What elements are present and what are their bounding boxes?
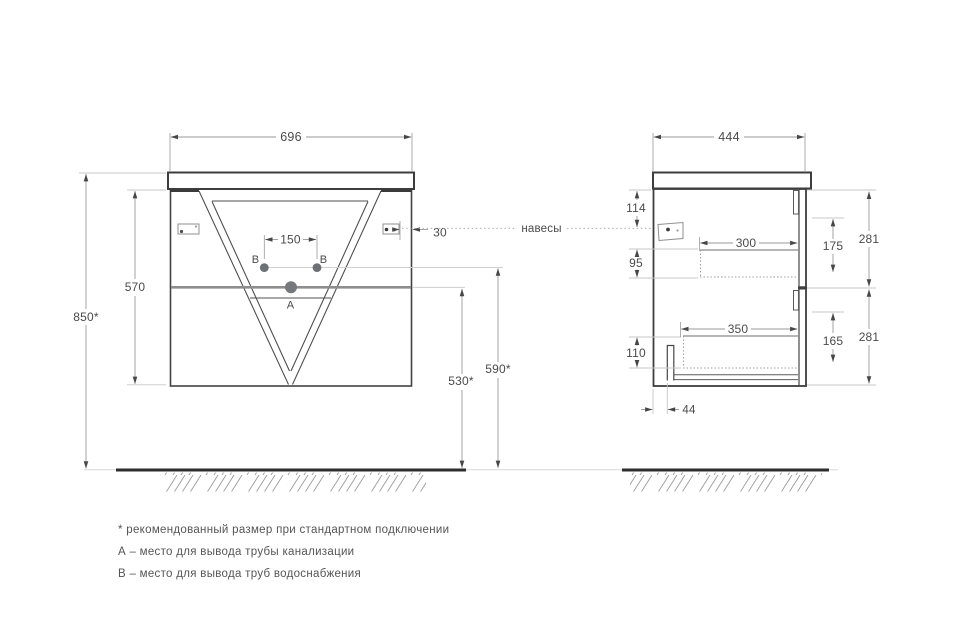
lower-drawer-rail [794, 291, 799, 311]
wall-bracket-right [383, 224, 399, 234]
dim-114-label: 114 [626, 201, 646, 215]
dim-150-label: 150 [280, 233, 301, 247]
hangers-label: навесы [521, 223, 561, 235]
water-outlet-point-left [260, 263, 269, 272]
front-countertop [168, 173, 414, 190]
note-point-b: B – место для вывода труб водоснабжения [118, 568, 361, 580]
dim-530-label: 530* [448, 374, 474, 388]
dim-350-label: 350 [728, 322, 749, 336]
note-point-a: А – место для вывода трубы канализации [118, 546, 354, 558]
dim-175: 175 [812, 218, 844, 272]
side-view: 444 114 95 110 300 [626, 130, 879, 417]
side-cabinet-body [654, 189, 807, 386]
drawer-fronts-gap [798, 286, 807, 289]
dim-165: 165 [812, 312, 844, 362]
note-asterisk: * рекомендованный размер при стандартном… [118, 524, 449, 536]
floor-hatch-front [160, 473, 426, 492]
dim-281-lower-label: 281 [859, 330, 880, 344]
dim-444-label: 444 [718, 130, 739, 144]
dim-850: 850* [73, 173, 166, 468]
drain-outlet-point [285, 281, 297, 293]
dim-114: 114 [626, 190, 651, 227]
dim-165-label: 165 [823, 334, 844, 348]
notes: * рекомендованный размер при стандартном… [118, 524, 449, 580]
label-a: A [287, 300, 295, 312]
dim-530: 530* [448, 289, 474, 468]
dim-444: 444 [653, 130, 805, 171]
front-view: B B A 150 30 696 [73, 130, 511, 468]
dim-590-label: 590* [485, 362, 511, 376]
dim-570: 570 [125, 190, 166, 385]
wall-bracket-side [658, 223, 683, 241]
dim-44: 44 [641, 383, 696, 417]
dim-696: 696 [170, 130, 412, 171]
floor [84, 470, 838, 492]
dim-44-label: 44 [682, 405, 696, 417]
side-countertop [653, 173, 811, 189]
dim-696-label: 696 [280, 130, 301, 144]
dim-175-label: 175 [823, 239, 844, 253]
label-b-right: B [320, 254, 328, 266]
dim-95-label: 95 [629, 256, 643, 270]
dim-110-label: 110 [626, 346, 646, 360]
dim-281-upper-label: 281 [859, 232, 880, 246]
wall-bracket-left [178, 224, 199, 234]
dim-30-label: 30 [433, 226, 447, 240]
technical-drawing: B B A 150 30 696 [0, 0, 970, 623]
upper-drawer-rail [794, 191, 799, 215]
dim-300-label: 300 [736, 236, 757, 250]
floor-hatch-side [630, 473, 822, 492]
dim-850-label: 850* [73, 310, 99, 324]
installation-drawing-page: B B A 150 30 696 [0, 0, 970, 623]
dim-30: 30 [392, 221, 447, 240]
label-b-left: B [252, 254, 260, 266]
dim-590: 590* [485, 269, 511, 468]
dim-570-label: 570 [125, 280, 146, 294]
